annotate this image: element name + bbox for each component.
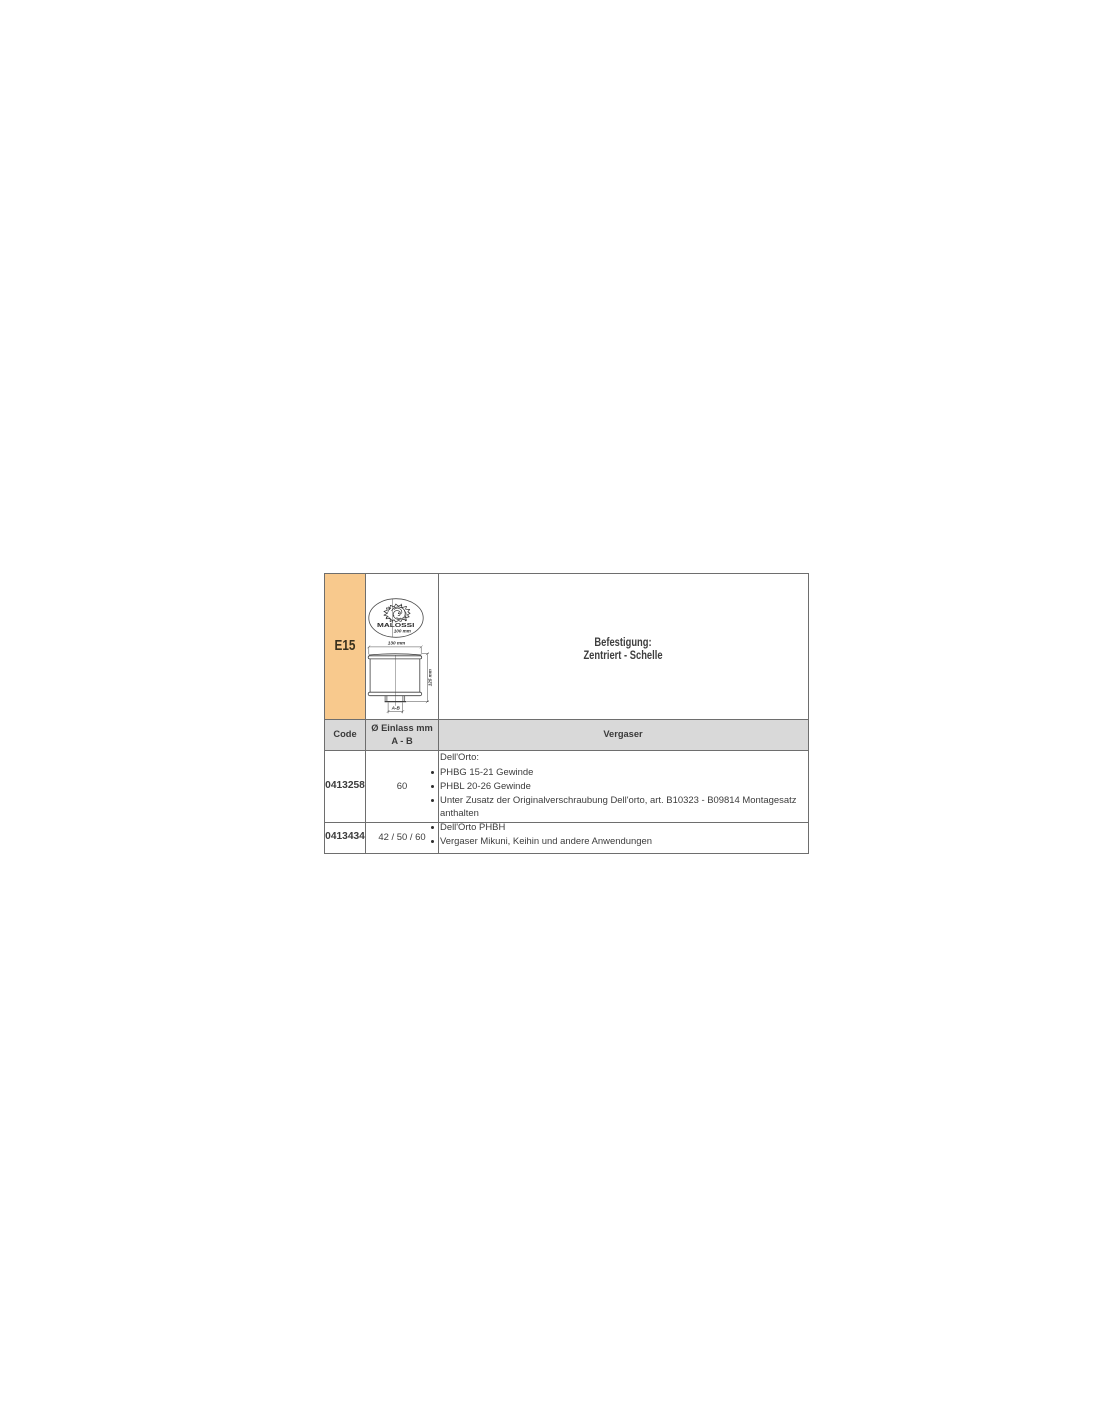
svg-text:125 mm: 125 mm (428, 669, 433, 686)
svg-text:100 mm: 100 mm (394, 629, 411, 634)
svg-text:130 mm: 130 mm (388, 640, 405, 645)
svg-text:A-B: A-B (391, 705, 401, 710)
